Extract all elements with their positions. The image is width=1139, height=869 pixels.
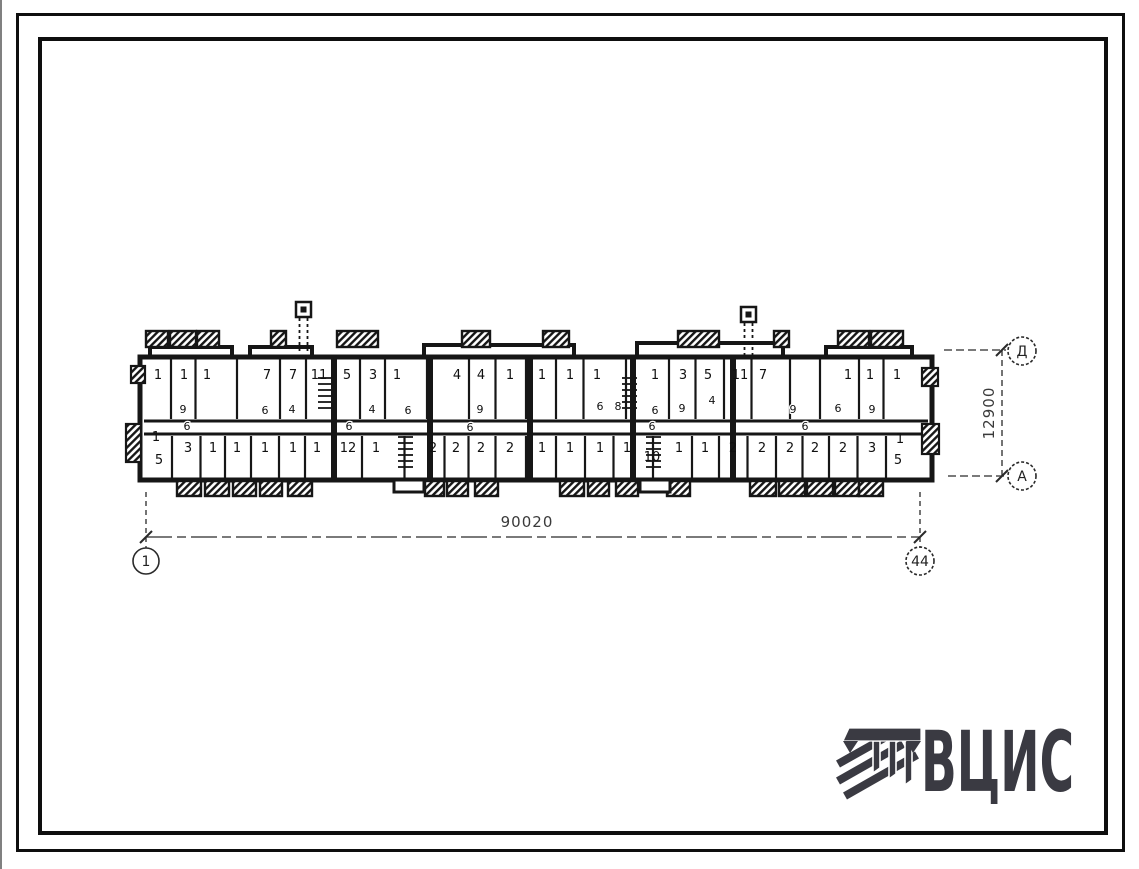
axis-label-d: Д (1017, 344, 1028, 360)
room-number-label: 7 (263, 368, 271, 383)
room-number-label: 1 (675, 441, 683, 456)
room-number-label: 4 (369, 403, 376, 416)
room-number-label: 6 (802, 420, 809, 433)
room-number-label: 6 (346, 420, 353, 433)
room-number-label: 2 (506, 441, 514, 456)
room-number-label: 10 (644, 450, 661, 465)
room-number-label: 11 (311, 368, 328, 383)
floor-plan-drawing: 1117711531441111135117111153111111212222… (0, 0, 1139, 869)
room-number-label: 1 (203, 368, 211, 383)
room-number-label: 12 (340, 441, 357, 456)
room-number-label: 5 (155, 453, 163, 468)
room-number-label: 6 (262, 404, 269, 417)
balcony (197, 331, 219, 347)
balcony (447, 481, 468, 496)
left-end-balcony (126, 424, 141, 462)
dimension-value-vertical: 12900 (980, 387, 998, 440)
room-number-label: 2 (811, 441, 819, 456)
room-number-label: 7 (289, 368, 297, 383)
room-number-label: 1 (313, 441, 321, 456)
room-number-label: 9 (869, 403, 876, 416)
room-number-label: 6 (467, 421, 474, 434)
room-number-label: 2 (758, 441, 766, 456)
room-number-label: 2 (429, 441, 437, 456)
room-number-label: 1 (538, 441, 546, 456)
axis-label-44: 44 (911, 554, 929, 570)
balcony (170, 331, 196, 347)
emblem-tooth (873, 741, 880, 773)
room-number-label: 1 (233, 441, 241, 456)
room-number-label: 1 (393, 368, 401, 383)
balcony (616, 481, 638, 496)
room-number-label: 1 (896, 432, 904, 447)
horizontal-dimension (133, 492, 934, 575)
room-number-label: 6 (652, 404, 659, 417)
room-number-label: 9 (180, 403, 187, 416)
balcony (779, 481, 805, 496)
room-number-label: 1 (893, 368, 901, 383)
balcony (750, 481, 776, 496)
balcony (205, 481, 229, 496)
room-number-label: 5 (343, 368, 351, 383)
room-number-label: 3 (868, 441, 876, 456)
room-number-label: 9 (679, 402, 686, 415)
balcony (678, 331, 719, 347)
room-number-label: 6 (405, 404, 412, 417)
left-end-vent (131, 366, 145, 383)
room-number-label: 9 (790, 403, 797, 416)
room-number-label: 4 (289, 403, 296, 416)
right-end-vent (922, 368, 938, 386)
balcony (560, 481, 584, 496)
balcony (475, 481, 498, 496)
room-number-label: 1 (538, 368, 546, 383)
vent-stack-core (301, 307, 307, 313)
room-number-label: 1 (372, 441, 380, 456)
room-number-label: 1 (180, 368, 188, 383)
room-number-label: 1 (506, 368, 514, 383)
room-number-label: 2 (729, 441, 737, 456)
room-number-label: 1 (154, 368, 162, 383)
room-number-label: 2 (477, 441, 485, 456)
balcony (177, 481, 201, 496)
balcony (271, 331, 286, 347)
balcony (462, 331, 490, 347)
room-number-label: 1 (623, 441, 631, 456)
room-number-label: 1 (566, 441, 574, 456)
room-number-label: 2 (452, 441, 460, 456)
entrance-porch (394, 480, 424, 492)
vent-stack-core (746, 312, 752, 318)
balcony (838, 331, 869, 347)
room-number-label: 7 (759, 368, 767, 383)
balcony (774, 331, 789, 347)
room-number-label: 4 (477, 368, 485, 383)
room-number-label: 6 (835, 402, 842, 415)
emblem-tooth (889, 741, 896, 779)
room-number-label: 1 (701, 441, 709, 456)
balcony (146, 331, 168, 347)
room-number-label: 3 (369, 368, 377, 383)
vcis-logo-emblem (838, 728, 921, 796)
balcony (337, 331, 378, 347)
vcis-logo-text: ВЦИС (921, 713, 1074, 811)
room-number-label: 6 (649, 420, 656, 433)
room-number-label: 5 (704, 368, 712, 383)
room-number-label: 6 (597, 400, 604, 413)
balcony (871, 331, 903, 347)
room-number-label: 3 (184, 441, 192, 456)
balcony (260, 481, 282, 496)
right-end-balcony (922, 424, 939, 454)
room-number-label: 4 (709, 394, 716, 407)
room-number-label: 5 (894, 453, 902, 468)
building-outline (140, 357, 932, 480)
drawing-sheet: 1117711531441111135117111153111111212222… (0, 0, 1139, 869)
room-number-label: 1 (593, 368, 601, 383)
room-number-label: 1 (289, 441, 297, 456)
room-number-label: 3 (679, 368, 687, 383)
emblem-beam (843, 728, 921, 741)
balcony (807, 481, 833, 496)
room-number-label: 1 (651, 368, 659, 383)
balcony (859, 481, 883, 496)
axis-label-1: 1 (142, 554, 151, 570)
balcony (233, 481, 256, 496)
room-number-label: 2 (786, 441, 794, 456)
room-number-label: 1 (844, 368, 852, 383)
axis-label-a: А (1017, 469, 1027, 485)
balcony (425, 481, 444, 496)
balcony (288, 481, 312, 496)
entrance-porch (640, 480, 670, 492)
room-number-label: 1 (261, 441, 269, 456)
balcony (835, 481, 859, 496)
room-number-label: 11 (732, 368, 749, 383)
room-number-label: 1 (596, 441, 604, 456)
room-number-label: 1 (209, 441, 217, 456)
balcony (543, 331, 569, 347)
room-number-label: 4 (453, 368, 461, 383)
room-number-label: 1 (566, 368, 574, 383)
balcony (588, 481, 609, 496)
room-number-label: 1 (866, 368, 874, 383)
dimension-value-horizontal: 90020 (501, 513, 554, 531)
room-number-label: 8 (615, 400, 622, 413)
building-body (140, 357, 932, 480)
room-number-label: 6 (184, 420, 191, 433)
vcis-logo: ВЦИС (838, 713, 1074, 811)
room-number-label: 2 (839, 441, 847, 456)
room-number-label: 9 (477, 403, 484, 416)
room-number-label: 1 (152, 430, 160, 445)
